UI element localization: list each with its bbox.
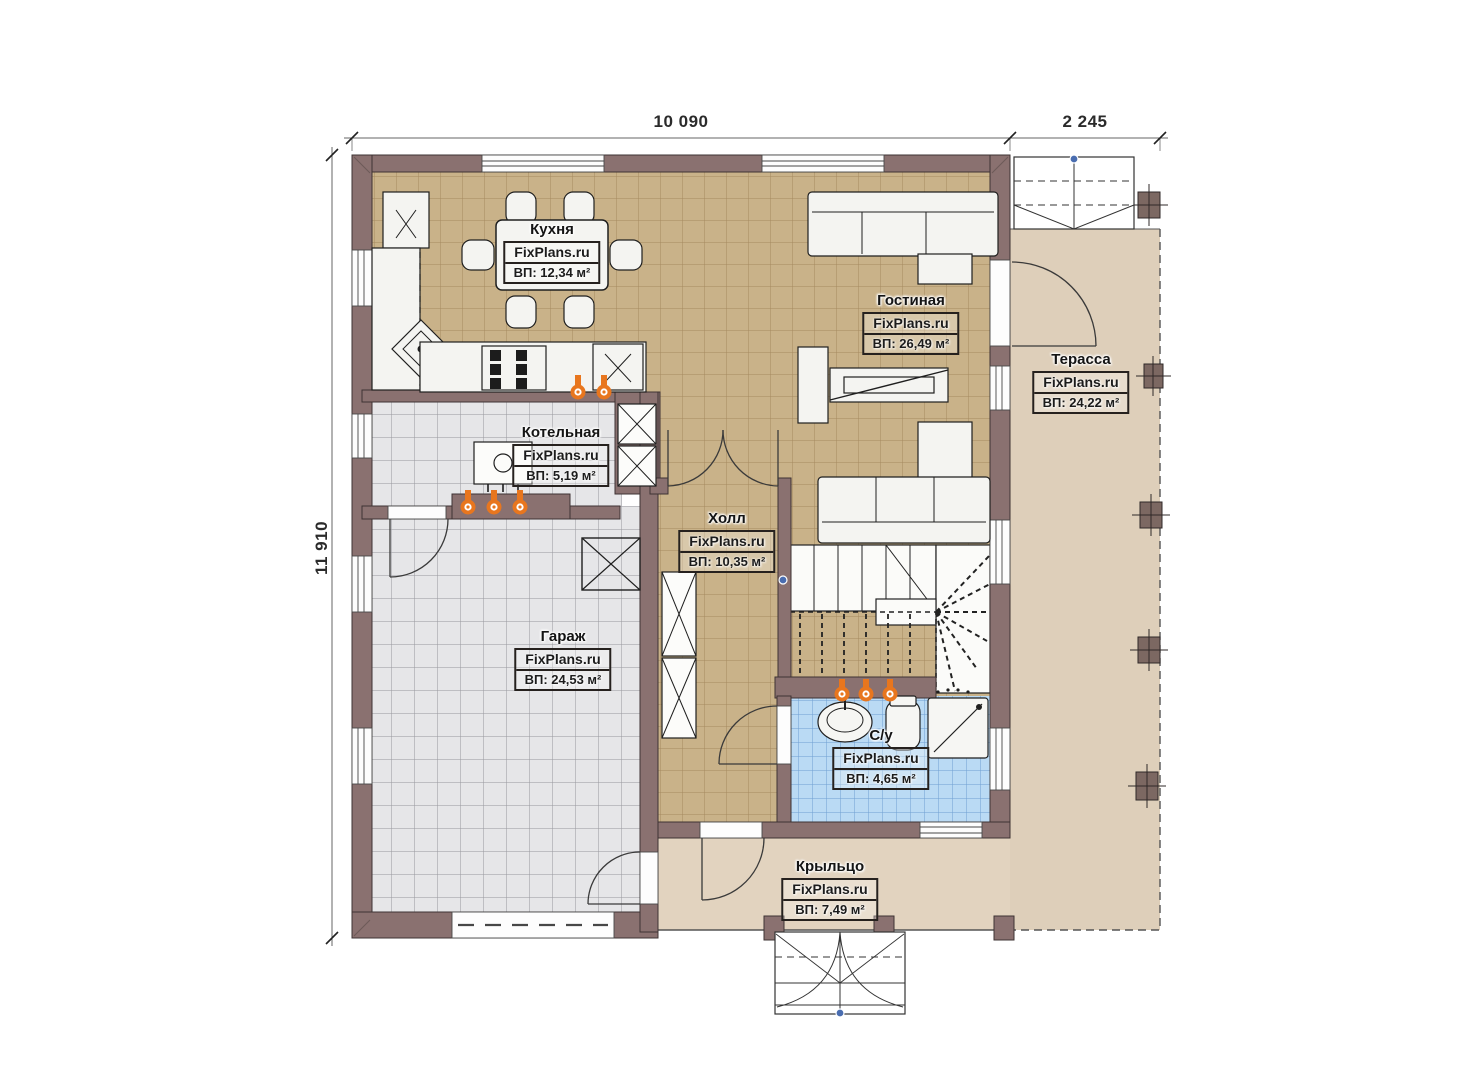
- room-area: ВП: 24,22 м²: [1034, 394, 1127, 412]
- room-name: Котельная: [512, 424, 609, 441]
- room-brand: FixPlans.ru: [516, 650, 609, 671]
- room-name: Терасса: [1032, 351, 1129, 368]
- window-left-kitchen: [352, 250, 372, 306]
- chair: [564, 296, 594, 328]
- wardrobe: [662, 658, 696, 738]
- room-info-box: FixPlans.ru ВП: 24,53 м²: [514, 648, 611, 691]
- shower: [928, 688, 988, 758]
- wall-stair-bath: [775, 677, 936, 698]
- room-label-kitchen: Кухня FixPlans.ru ВП: 12,34 м²: [503, 221, 600, 284]
- column: [1130, 184, 1168, 226]
- room-brand: FixPlans.ru: [680, 532, 773, 553]
- room-name: Холл: [678, 510, 775, 527]
- vent-shaft: [618, 404, 656, 444]
- sofa-top: [808, 192, 998, 256]
- stove: [482, 346, 546, 390]
- window-left-garage-2: [352, 728, 372, 784]
- dimension-width-main: 10 090: [352, 112, 1010, 132]
- wall-top: [352, 155, 1010, 172]
- room-label-porch: Крыльцо FixPlans.ru ВП: 7,49 м²: [781, 858, 878, 921]
- window-porch-wall: [920, 822, 982, 838]
- room-label-living: Гостиная FixPlans.ru ВП: 26,49 м²: [862, 292, 959, 355]
- window-top-living: [762, 155, 884, 172]
- room-label-boiler: Котельная FixPlans.ru ВП: 5,19 м²: [512, 424, 609, 487]
- door-gap-entry: [700, 822, 762, 838]
- door-gap-boiler-garage: [388, 506, 446, 519]
- porch-steps: [775, 932, 905, 1014]
- floor-plan-page: 10 090 2 245 11 910 Кухня FixPlans.ru ВП…: [0, 0, 1473, 1080]
- room-info-box: FixPlans.ru ВП: 12,34 м²: [503, 241, 600, 284]
- dimension-width-terrace: 2 245: [1010, 112, 1160, 132]
- room-name: Крыльцо: [781, 858, 878, 875]
- fridge: [383, 192, 429, 248]
- porch-post: [994, 916, 1014, 940]
- window-left-garage-1: [352, 556, 372, 612]
- room-label-terrace: Терасса FixPlans.ru ВП: 24,22 м²: [1032, 351, 1129, 414]
- chaise-bottom: [918, 422, 972, 478]
- room-info-box: FixPlans.ru ВП: 7,49 м²: [781, 878, 878, 921]
- chair: [462, 240, 494, 270]
- garage-floor: [362, 506, 658, 932]
- door-gap-bathroom: [777, 706, 791, 764]
- room-area: ВП: 5,19 м²: [514, 467, 607, 485]
- window-left-boiler: [352, 414, 372, 458]
- wardrobe: [662, 572, 696, 656]
- room-area: ВП: 10,35 м²: [680, 553, 773, 571]
- room-area: ВП: 7,49 м²: [783, 901, 876, 919]
- window-right-living-2: [990, 520, 1010, 584]
- room-name: Гараж: [514, 628, 611, 645]
- window-top-kitchen: [482, 155, 604, 172]
- door-gap-terrace: [990, 260, 1010, 346]
- room-area: ВП: 12,34 м²: [505, 264, 598, 282]
- vent-shaft: [618, 446, 656, 486]
- room-info-box: FixPlans.ru ВП: 26,49 м²: [862, 312, 959, 355]
- room-brand: FixPlans.ru: [834, 749, 927, 770]
- room-area: ВП: 26,49 м²: [864, 335, 957, 353]
- dimension-height-left: 11 910: [312, 498, 332, 598]
- door-gap-garage-side: [640, 852, 658, 904]
- chair: [610, 240, 642, 270]
- window-right-living-1: [990, 366, 1010, 410]
- room-area: ВП: 24,53 м²: [516, 671, 609, 689]
- room-name: С/у: [832, 727, 929, 744]
- chair: [564, 192, 594, 224]
- room-name: Гостиная: [862, 292, 959, 309]
- ottoman-top: [918, 254, 972, 284]
- room-brand: FixPlans.ru: [783, 880, 876, 901]
- room-label-bathroom: С/у FixPlans.ru ВП: 4,65 м²: [832, 727, 929, 790]
- shelf: [798, 347, 828, 423]
- tv-stand: [830, 368, 948, 402]
- room-brand: FixPlans.ru: [514, 446, 607, 467]
- chair: [506, 296, 536, 328]
- chair: [506, 192, 536, 224]
- window-right-bathroom: [990, 728, 1010, 790]
- room-name: Кухня: [503, 221, 600, 238]
- garage-door: [452, 912, 614, 938]
- room-info-box: FixPlans.ru ВП: 5,19 м²: [512, 444, 609, 487]
- room-brand: FixPlans.ru: [1034, 373, 1127, 394]
- room-area: ВП: 4,65 м²: [834, 770, 927, 788]
- room-info-box: FixPlans.ru ВП: 10,35 м²: [678, 530, 775, 573]
- room-info-box: FixPlans.ru ВП: 4,65 м²: [832, 747, 929, 790]
- terrace-steps: [1014, 157, 1134, 229]
- room-brand: FixPlans.ru: [864, 314, 957, 335]
- room-label-hall: Холл FixPlans.ru ВП: 10,35 м²: [678, 510, 775, 573]
- kitchen-appliance: [593, 344, 643, 390]
- room-brand: FixPlans.ru: [505, 243, 598, 264]
- room-label-garage: Гараж FixPlans.ru ВП: 24,53 м²: [514, 628, 611, 691]
- sofa-bottom: [818, 477, 990, 543]
- terrace-floor: [1010, 229, 1160, 930]
- room-info-box: FixPlans.ru ВП: 24,22 м²: [1032, 371, 1129, 414]
